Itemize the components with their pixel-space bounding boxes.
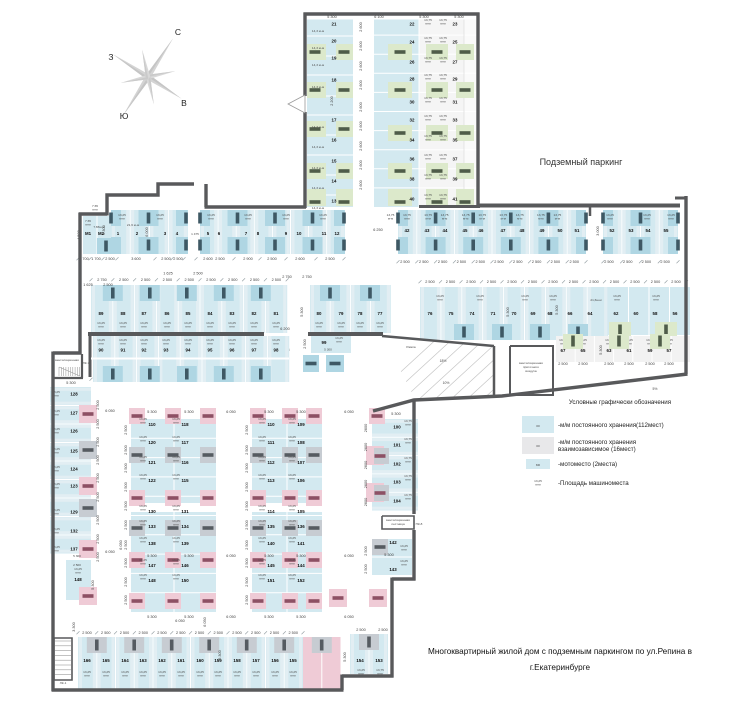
svg-text:101: 101: [393, 443, 401, 448]
svg-text:г.Екатеринбурге: г.Екатеринбурге: [530, 663, 591, 672]
svg-text:148: 148: [148, 578, 156, 583]
svg-text:2 500: 2 500: [103, 283, 113, 287]
svg-text:м-м: м-м: [159, 674, 164, 678]
svg-text:111: 111: [268, 440, 275, 445]
svg-text:138: 138: [148, 541, 156, 546]
svg-text:44: 44: [443, 228, 448, 233]
svg-text:м-м: м-м: [157, 217, 162, 221]
svg-text:22: 22: [410, 22, 415, 27]
svg-text:2 500: 2 500: [270, 631, 280, 635]
svg-text:2 500: 2 500: [378, 628, 388, 632]
svg-text:м-м: м-м: [401, 563, 406, 567]
svg-text:м-м: м-м: [550, 298, 555, 302]
svg-text:2 500: 2 500: [589, 280, 599, 284]
svg-text:5 300: 5 300: [296, 615, 306, 619]
svg-text:Условные графически обозначени: Условные графически обозначения: [569, 399, 671, 406]
svg-text:5%: 5%: [653, 387, 658, 391]
svg-text:120: 120: [148, 440, 156, 445]
svg-text:5 300: 5 300: [300, 307, 304, 317]
svg-text:2 500: 2 500: [245, 501, 249, 511]
svg-text:157: 157: [252, 658, 260, 663]
svg-text:14,3 м-м: 14,3 м-м: [312, 46, 324, 50]
svg-text:м-м: м-м: [644, 217, 649, 221]
svg-text:м-м: м-м: [501, 217, 506, 221]
svg-text:116: 116: [181, 460, 189, 465]
svg-text:109: 109: [297, 422, 305, 427]
svg-text:2 500: 2 500: [124, 445, 128, 455]
svg-text:164: 164: [121, 658, 129, 663]
svg-text:2 500: 2 500: [272, 278, 282, 282]
svg-text:м-м: м-м: [289, 577, 294, 581]
svg-text:87: 87: [142, 311, 147, 316]
svg-text:148: 148: [74, 577, 82, 582]
svg-text:6 050: 6 050: [344, 615, 354, 619]
svg-text:2 500: 2 500: [96, 455, 100, 465]
svg-text:152: 152: [297, 578, 305, 583]
svg-text:5 300: 5 300: [102, 225, 106, 235]
svg-text:2 500: 2 500: [163, 278, 173, 282]
svg-text:100: 100: [393, 425, 401, 430]
svg-text:м-м: м-м: [75, 571, 80, 575]
svg-text:2 500: 2 500: [400, 260, 410, 264]
svg-text:71: 71: [491, 311, 496, 316]
svg-text:153: 153: [375, 658, 383, 663]
svg-text:123: 123: [70, 484, 78, 489]
svg-text:124: 124: [70, 467, 78, 472]
svg-text:м-м: м-м: [259, 508, 264, 512]
svg-text:м-м: м-м: [440, 77, 445, 81]
svg-text:23: 23: [453, 22, 458, 27]
svg-text:47: 47: [501, 228, 506, 233]
svg-text:55: 55: [664, 228, 669, 233]
svg-text:5 300: 5 300: [147, 615, 157, 619]
svg-text:74: 74: [470, 311, 475, 316]
svg-text:88: 88: [121, 311, 126, 316]
svg-text:м-м: м-м: [119, 217, 124, 221]
svg-text:26: 26: [410, 60, 415, 65]
svg-text:м-м: м-м: [173, 439, 178, 443]
svg-text:2 500: 2 500: [457, 260, 467, 264]
svg-text:112: 112: [267, 460, 275, 465]
svg-text:14,3 м-м: 14,3 м-м: [312, 85, 324, 89]
svg-text:15: 15: [332, 159, 337, 164]
svg-text:м-м: м-м: [289, 523, 294, 527]
svg-text:м-м: м-м: [173, 477, 178, 481]
svg-text:2 500: 2 500: [96, 534, 100, 544]
svg-text:89: 89: [99, 311, 104, 316]
svg-text:2 500: 2 500: [651, 280, 661, 284]
svg-text:128: 128: [70, 392, 78, 397]
svg-text:С: С: [175, 27, 181, 37]
svg-text:м-м: м-м: [463, 217, 468, 221]
svg-text:2 500: 2 500: [250, 278, 260, 282]
svg-text:м-м: м-м: [140, 459, 145, 463]
svg-text:м-м: м-м: [425, 177, 430, 181]
svg-text:129: 129: [70, 510, 78, 515]
svg-text:54: 54: [646, 228, 651, 233]
svg-text:00: 00: [536, 424, 540, 428]
svg-text:м-м: м-м: [98, 325, 103, 329]
svg-text:2 500: 2 500: [630, 280, 640, 284]
svg-text:м-м: м-м: [440, 100, 445, 104]
svg-text:-мотоместо (2места): -мотоместо (2места): [558, 461, 617, 468]
svg-text:м-м: м-м: [140, 562, 145, 566]
svg-text:18: 18: [332, 78, 337, 83]
svg-text:118: 118: [181, 422, 189, 427]
svg-text:142: 142: [389, 540, 397, 545]
svg-text:117: 117: [181, 440, 189, 445]
svg-text:М0: М0: [536, 463, 541, 467]
svg-text:м-м: м-м: [141, 325, 146, 329]
svg-text:2 500: 2 500: [569, 260, 579, 264]
svg-text:19: 19: [332, 56, 337, 61]
svg-text:6 000: 6 000: [145, 227, 149, 237]
svg-text:6 050: 6 050: [105, 409, 115, 413]
svg-text:2600: 2600: [364, 424, 368, 432]
svg-text:21,6м-м: 21,6м-м: [590, 298, 601, 302]
svg-text:1 475: 1 475: [191, 232, 199, 236]
svg-text:2 500: 2 500: [193, 272, 203, 276]
svg-text:158: 158: [233, 658, 241, 663]
svg-text:110: 110: [148, 422, 156, 427]
svg-text:106: 106: [297, 478, 305, 483]
svg-text:2 750: 2 750: [282, 275, 292, 279]
svg-text:взаимозависимое (16мест): взаимозависимое (16мест): [558, 446, 636, 453]
svg-text:2 500: 2 500: [173, 257, 183, 261]
svg-text:20: 20: [332, 39, 337, 44]
svg-text:38: 38: [410, 177, 415, 182]
svg-text:95: 95: [208, 348, 213, 353]
svg-text:2 500: 2 500: [551, 260, 561, 264]
svg-text:2 500: 2 500: [96, 492, 100, 502]
svg-text:2 500: 2 500: [73, 563, 81, 567]
svg-text:98: 98: [274, 348, 279, 353]
svg-text:м-м: м-м: [405, 441, 410, 445]
svg-text:2600: 2600: [364, 443, 368, 451]
svg-text:12: 12: [335, 231, 340, 236]
svg-text:м-м: м-м: [92, 208, 97, 212]
svg-text:м-м: м-м: [234, 674, 239, 678]
svg-text:5 300: 5 300: [264, 615, 274, 619]
svg-text:м-м: м-м: [607, 217, 612, 221]
svg-text:132: 132: [70, 529, 78, 534]
svg-text:2 500: 2 500: [528, 280, 538, 284]
svg-text:2 500: 2 500: [161, 257, 171, 261]
svg-text:86: 86: [165, 311, 170, 316]
svg-text:м-м: м-м: [140, 477, 145, 481]
svg-text:м-м: м-м: [517, 217, 522, 221]
svg-text:2 500: 2 500: [119, 278, 129, 282]
svg-text:5 300: 5 300: [184, 615, 194, 619]
svg-text:134: 134: [181, 524, 189, 529]
svg-text:м-м: м-м: [173, 577, 178, 581]
svg-text:36: 36: [410, 157, 415, 162]
svg-text:м-м: м-м: [259, 421, 264, 425]
svg-text:2 500: 2 500: [176, 631, 186, 635]
svg-text:17: 17: [332, 118, 337, 123]
svg-text:м-м: м-м: [207, 342, 212, 346]
svg-text:2 500: 2 500: [101, 631, 111, 635]
svg-text:37: 37: [453, 157, 458, 162]
svg-text:2 500: 2 500: [141, 278, 151, 282]
svg-text:6 050: 6 050: [226, 554, 236, 558]
svg-text:126: 126: [70, 429, 78, 434]
svg-text:5 300: 5 300: [73, 554, 81, 558]
svg-text:91: 91: [121, 348, 126, 353]
svg-text:85: 85: [186, 311, 191, 316]
svg-text:10: 10: [297, 231, 302, 236]
svg-text:м-м: м-м: [440, 197, 445, 201]
svg-text:62: 62: [614, 311, 619, 316]
svg-text:2 500: 2 500: [96, 400, 100, 410]
svg-text:м-м: м-м: [405, 460, 410, 464]
svg-text:102: 102: [393, 462, 401, 467]
svg-text:м-м: м-м: [173, 540, 178, 544]
svg-text:м-м: м-м: [141, 342, 146, 346]
svg-text:2 500: 2 500: [548, 280, 558, 284]
svg-text:5 300: 5 300: [147, 554, 157, 558]
svg-text:2 500: 2 500: [245, 520, 249, 530]
svg-text:2 600: 2 600: [359, 141, 363, 151]
svg-text:35: 35: [453, 138, 458, 143]
svg-text:42: 42: [405, 228, 410, 233]
svg-text:64: 64: [588, 311, 593, 316]
svg-text:33: 33: [453, 118, 458, 123]
svg-text:2 500: 2 500: [213, 631, 223, 635]
svg-text:2 500: 2 500: [438, 260, 448, 264]
svg-text:143: 143: [389, 567, 397, 572]
svg-text:25: 25: [453, 40, 458, 45]
svg-text:м-м: м-м: [229, 325, 234, 329]
svg-text:2 500: 2 500: [245, 482, 249, 492]
svg-text:122: 122: [148, 478, 156, 483]
svg-text:2 500: 2 500: [124, 482, 128, 492]
svg-text:1 625: 1 625: [83, 283, 93, 287]
svg-text:2 500: 2 500: [466, 280, 476, 284]
svg-text:м-м: м-м: [425, 217, 430, 221]
svg-text:51: 51: [575, 228, 580, 233]
svg-text:5 300: 5 300: [506, 307, 510, 317]
svg-text:м-м: м-м: [140, 523, 145, 527]
svg-text:м-м: м-м: [440, 118, 445, 122]
svg-text:2 500: 2 500: [215, 257, 225, 261]
svg-text:-м/м постоянного хранения(112м: -м/м постоянного хранения(112мест): [558, 422, 664, 429]
svg-text:вентиляционная: вентиляционная: [55, 358, 79, 362]
svg-text:115: 115: [181, 478, 189, 483]
svg-text:м-м: м-м: [401, 548, 406, 552]
svg-text:103: 103: [393, 480, 401, 485]
svg-text:5 300: 5 300: [184, 410, 194, 414]
svg-text:11: 11: [322, 231, 327, 236]
svg-text:2 500: 2 500: [96, 437, 100, 447]
svg-text:2 500: 2 500: [157, 631, 167, 635]
svg-text:2600: 2600: [364, 480, 368, 488]
svg-text:2 500: 2 500: [645, 362, 655, 366]
svg-text:162: 162: [158, 658, 166, 663]
svg-text:137: 137: [70, 547, 78, 552]
svg-text:м-м: м-м: [425, 22, 430, 26]
svg-text:2 500: 2 500: [664, 362, 674, 366]
svg-text:м-м: м-м: [440, 22, 445, 26]
svg-text:м-м: м-м: [437, 298, 442, 302]
svg-text:2 500: 2 500: [120, 631, 130, 635]
svg-text:м-м: м-м: [259, 439, 264, 443]
svg-text:м-м: м-м: [178, 674, 183, 678]
svg-text:5 300: 5 300: [343, 652, 347, 662]
svg-text:м-м: м-м: [173, 508, 178, 512]
svg-text:2 750: 2 750: [97, 278, 107, 282]
svg-text:28: 28: [410, 77, 415, 82]
svg-text:5 300: 5 300: [66, 381, 76, 385]
svg-text:145: 145: [267, 563, 275, 568]
svg-text:2 500: 2 500: [610, 280, 620, 284]
svg-text:2 750: 2 750: [302, 275, 312, 279]
svg-text:м-м: м-м: [251, 342, 256, 346]
svg-text:140: 140: [267, 541, 275, 546]
svg-text:м-м: м-м: [289, 562, 294, 566]
svg-text:114: 114: [267, 509, 275, 514]
svg-text:м-м: м-м: [283, 217, 288, 221]
svg-text:2 500: 2 500: [532, 260, 542, 264]
svg-text:м-м: м-м: [251, 325, 256, 329]
svg-text:2 500: 2 500: [245, 558, 249, 568]
svg-text:2 200: 2 200: [330, 96, 334, 106]
svg-text:м-м: м-м: [440, 40, 445, 44]
svg-text:5 300: 5 300: [296, 410, 306, 414]
svg-text:2 500: 2 500: [124, 540, 128, 550]
svg-text:6 250: 6 250: [373, 228, 383, 232]
svg-text:м-м: м-м: [140, 674, 145, 678]
svg-text:м-м: м-м: [440, 60, 445, 64]
svg-text:53: 53: [629, 228, 634, 233]
svg-text:135: 135: [267, 524, 275, 529]
svg-text:14,3 м-м: 14,3 м-м: [312, 145, 324, 149]
svg-text:м-м: м-м: [140, 577, 145, 581]
svg-text:З: З: [108, 52, 113, 62]
svg-text:3 000: 3 000: [596, 226, 600, 236]
svg-text:м-м: м-м: [245, 217, 250, 221]
svg-text:м-м: м-м: [289, 421, 294, 425]
svg-text:43: 43: [425, 228, 430, 233]
svg-text:2 500: 2 500: [124, 425, 128, 435]
svg-text:2 500: 2 500: [245, 445, 249, 455]
svg-text:2 500: 2 500: [356, 628, 366, 632]
svg-text:м-м: м-м: [259, 523, 264, 527]
svg-text:м-м: м-м: [273, 342, 278, 346]
svg-text:39: 39: [453, 177, 458, 182]
svg-text:147: 147: [148, 563, 156, 568]
svg-text:м-м: м-м: [425, 138, 430, 142]
svg-text:Многоквартирный жилой дом с по: Многоквартирный жилой дом с подземным па…: [428, 647, 692, 656]
svg-text:113: 113: [267, 478, 275, 483]
svg-text:2 600: 2 600: [359, 22, 363, 32]
svg-text:5 300: 5 300: [555, 305, 559, 315]
svg-text:121: 121: [148, 460, 156, 465]
svg-text:2 600: 2 600: [359, 102, 363, 112]
svg-text:м-м: м-м: [425, 118, 430, 122]
svg-text:141: 141: [297, 541, 305, 546]
svg-text:105: 105: [297, 509, 305, 514]
svg-text:50: 50: [558, 228, 563, 233]
svg-text:2 500: 2 500: [624, 362, 634, 366]
svg-text:2600: 2600: [364, 461, 368, 469]
svg-text:м-м: м-м: [259, 577, 264, 581]
svg-text:м-м: м-м: [440, 157, 445, 161]
svg-text:2 500: 2 500: [245, 540, 249, 550]
svg-text:м-м: м-м: [289, 459, 294, 463]
svg-text:м-м: м-м: [120, 325, 125, 329]
svg-text:107: 107: [297, 460, 305, 465]
svg-text:46: 46: [479, 228, 484, 233]
svg-text:2 500: 2 500: [604, 362, 614, 366]
svg-text:41: 41: [453, 197, 458, 202]
svg-text:3 600: 3 600: [131, 257, 141, 261]
svg-text:48: 48: [520, 228, 525, 233]
svg-text:5 300: 5 300: [264, 554, 274, 558]
svg-text:5 300: 5 300: [184, 554, 194, 558]
svg-text:21,6 м-м: 21,6 м-м: [127, 223, 139, 227]
svg-text:2 600: 2 600: [359, 80, 363, 90]
svg-text:5 300: 5 300: [218, 650, 222, 660]
svg-text:10%: 10%: [443, 381, 450, 385]
svg-text:166: 166: [83, 658, 91, 663]
svg-text:92: 92: [142, 348, 147, 353]
svg-text:24: 24: [410, 40, 415, 45]
svg-text:м-м: м-м: [140, 439, 145, 443]
svg-text:14,3 м-м: 14,3 м-м: [312, 125, 324, 129]
svg-text:2 900: 2 900: [243, 257, 253, 261]
svg-text:5 300: 5 300: [599, 345, 603, 355]
svg-text:2 500: 2 500: [419, 260, 429, 264]
svg-text:131: 131: [181, 509, 189, 514]
svg-text:146: 146: [181, 563, 189, 568]
svg-text:2 500: 2 500: [124, 501, 128, 511]
svg-text:68: 68: [548, 311, 553, 316]
svg-text:40: 40: [410, 197, 415, 202]
svg-text:м-м: м-м: [103, 674, 108, 678]
svg-text:м-м: м-м: [98, 342, 103, 346]
svg-text:2 500: 2 500: [124, 520, 128, 530]
svg-text:м-м: м-м: [377, 325, 382, 329]
svg-text:76: 76: [428, 311, 433, 316]
svg-text:14,3 м-м: 14,3 м-м: [312, 166, 324, 170]
svg-text:2 500: 2 500: [206, 278, 216, 282]
svg-text:13: 13: [332, 199, 337, 204]
svg-text:2600: 2600: [364, 498, 368, 506]
svg-text:м-м: м-м: [259, 477, 264, 481]
svg-text:34: 34: [410, 138, 415, 143]
svg-text:2 500: 2 500: [671, 280, 681, 284]
svg-text:м-м: м-м: [477, 298, 482, 302]
svg-text:м-м: м-м: [259, 459, 264, 463]
svg-text:м-м: м-м: [404, 217, 409, 221]
svg-text:5 300: 5 300: [147, 410, 157, 414]
svg-text:81: 81: [274, 311, 279, 316]
svg-text:78: 78: [358, 311, 363, 316]
svg-text:2 500: 2 500: [245, 425, 249, 435]
svg-text:2 500: 2 500: [494, 260, 504, 264]
svg-text:96: 96: [230, 348, 235, 353]
svg-text:воздуха: воздуха: [525, 369, 537, 373]
svg-text:м-м: м-м: [442, 217, 447, 221]
svg-text:155: 155: [289, 658, 297, 663]
svg-text:м-м: м-м: [229, 342, 234, 346]
svg-text:154: 154: [356, 658, 364, 663]
svg-text:м-м: м-м: [425, 157, 430, 161]
svg-text:2 500: 2 500: [364, 564, 368, 574]
svg-text:6 200: 6 200: [280, 327, 290, 331]
svg-text:м-м: м-м: [173, 421, 178, 425]
